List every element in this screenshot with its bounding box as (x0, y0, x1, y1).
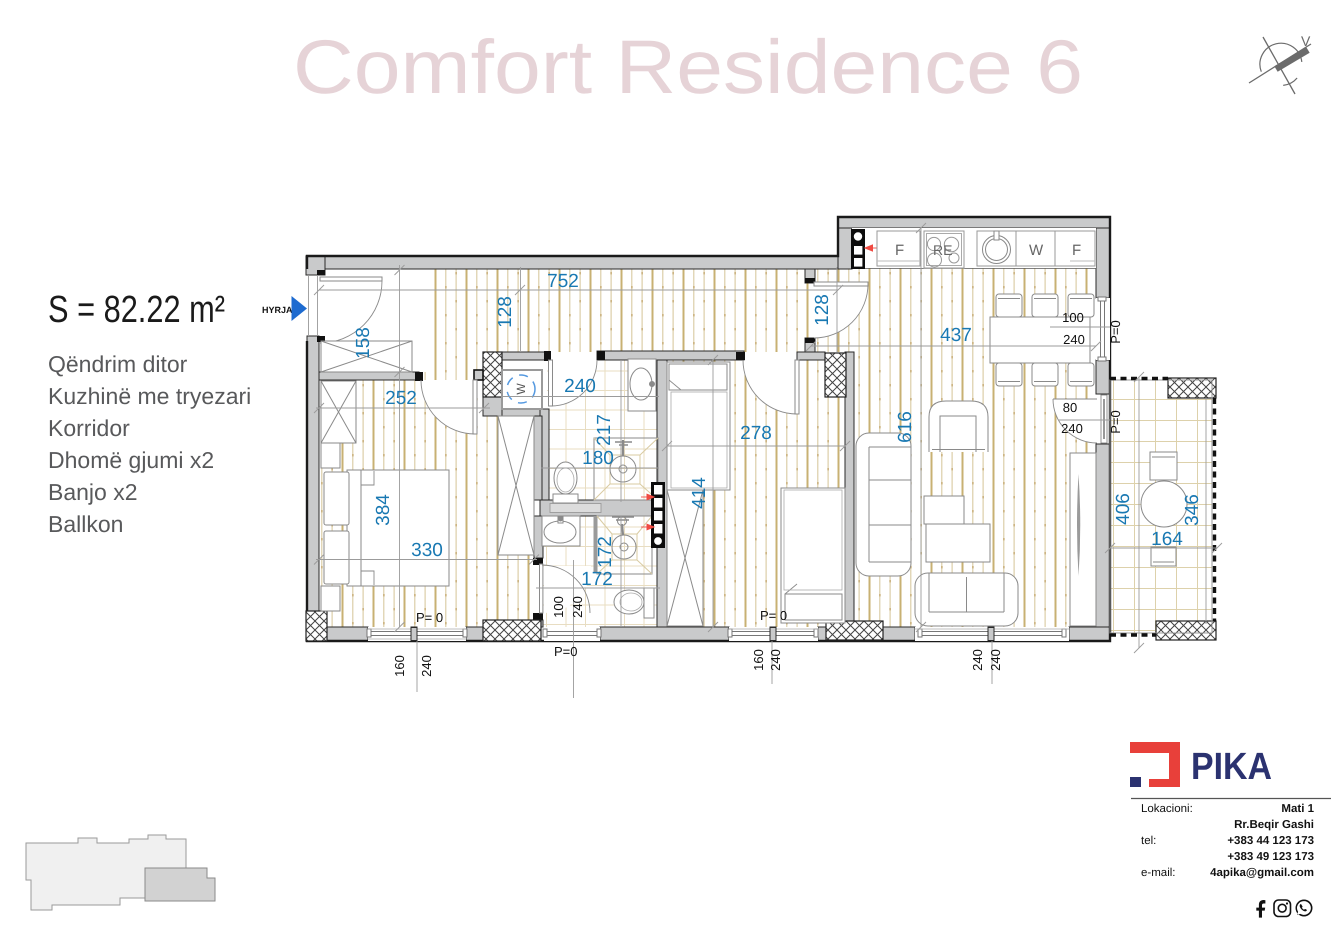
svg-text:158: 158 (353, 327, 374, 359)
svg-text:406: 406 (1113, 493, 1134, 525)
svg-text:F: F (895, 242, 904, 259)
svg-text:Banjo x2: Banjo x2 (48, 479, 138, 505)
svg-text:240: 240 (768, 649, 783, 671)
svg-text:Kuzhinë me tryezari: Kuzhinë me tryezari (48, 383, 251, 409)
svg-text:240: 240 (970, 649, 985, 671)
svg-text:Rr.Beqir Gashi: Rr.Beqir Gashi (1234, 819, 1314, 831)
svg-text:172: 172 (581, 569, 613, 590)
svg-text:+383 49 123 173: +383 49 123 173 (1227, 851, 1314, 863)
svg-text:160: 160 (751, 649, 766, 671)
svg-text:752: 752 (547, 271, 579, 292)
svg-text:164: 164 (1151, 529, 1183, 550)
svg-text:tel:: tel: (1141, 835, 1156, 847)
svg-text:Lokacioni:: Lokacioni: (1141, 803, 1193, 815)
svg-text:Ballkon: Ballkon (48, 511, 123, 537)
svg-text:P=0: P=0 (554, 644, 578, 659)
svg-text:RE: RE (933, 242, 952, 258)
svg-text:240: 240 (1063, 332, 1085, 347)
svg-text:P= 0: P= 0 (416, 610, 443, 625)
svg-text:V: V (1301, 33, 1311, 49)
svg-text:W: W (514, 383, 528, 395)
svg-text:172: 172 (595, 536, 616, 568)
svg-text:160: 160 (392, 655, 407, 677)
svg-text:P=0: P=0 (1108, 320, 1123, 344)
svg-text:P=0: P=0 (1108, 410, 1123, 434)
svg-text:P= 0: P= 0 (760, 608, 787, 623)
svg-text:100: 100 (551, 596, 566, 618)
svg-text:PIKA: PIKA (1191, 746, 1272, 788)
svg-text:240: 240 (564, 376, 596, 397)
svg-text:F: F (1072, 242, 1081, 259)
svg-text:128: 128 (812, 294, 833, 326)
svg-text:240: 240 (1061, 421, 1083, 436)
svg-text:252: 252 (385, 388, 417, 409)
svg-text:437: 437 (940, 325, 972, 346)
svg-text:4apika@gmail.com: 4apika@gmail.com (1210, 867, 1314, 879)
svg-text:330: 330 (411, 540, 443, 561)
svg-text:240: 240 (988, 649, 1003, 671)
svg-text:Comfort Residence 6: Comfort Residence 6 (293, 25, 1083, 110)
svg-text:Dhomë gjumi x2: Dhomë gjumi x2 (48, 447, 214, 473)
svg-text:346: 346 (1182, 494, 1203, 526)
svg-text:180: 180 (582, 448, 614, 469)
svg-text:278: 278 (740, 423, 772, 444)
svg-text:Korridor: Korridor (48, 415, 130, 441)
svg-text:Qëndrim ditor: Qëndrim ditor (48, 351, 188, 377)
svg-text:240: 240 (419, 655, 434, 677)
svg-text:217: 217 (594, 414, 615, 446)
svg-text:Mati 1: Mati 1 (1281, 803, 1314, 815)
svg-text:100: 100 (1062, 310, 1084, 325)
svg-text:HYRJA: HYRJA (262, 305, 293, 315)
svg-text:S = 82.22 m²: S = 82.22 m² (48, 289, 225, 331)
svg-text:128: 128 (495, 296, 516, 328)
svg-text:414: 414 (689, 477, 710, 509)
svg-text:+383 44 123 173: +383 44 123 173 (1227, 835, 1314, 847)
svg-text:240: 240 (570, 596, 585, 618)
svg-text:e-mail:: e-mail: (1141, 867, 1176, 879)
svg-text:W: W (1029, 242, 1044, 259)
svg-text:384: 384 (373, 494, 394, 526)
svg-text:616: 616 (895, 411, 916, 443)
svg-text:80: 80 (1063, 400, 1077, 415)
